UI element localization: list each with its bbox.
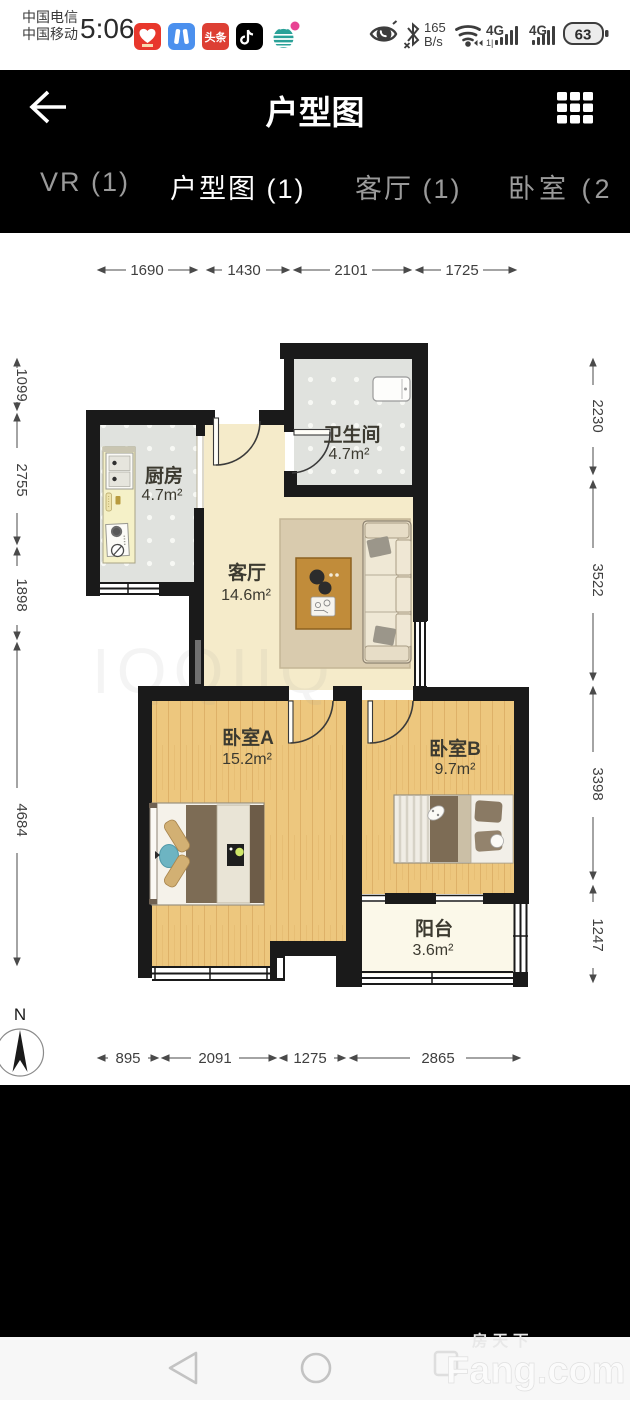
svg-text:4.7m²: 4.7m² bbox=[329, 446, 371, 463]
svg-text:1898: 1898 bbox=[13, 578, 30, 611]
svg-text:2755: 2755 bbox=[13, 463, 30, 496]
svg-text:1275: 1275 bbox=[293, 1050, 326, 1067]
svg-text:1247: 1247 bbox=[589, 918, 606, 951]
svg-text:1690: 1690 bbox=[130, 262, 163, 279]
svg-text:Fang.com: Fang.com bbox=[446, 1350, 625, 1392]
svg-text:N: N bbox=[14, 1005, 26, 1024]
svg-text:B/s: B/s bbox=[424, 34, 443, 49]
svg-text:卧室B: 卧室B bbox=[429, 737, 481, 760]
svg-text:165: 165 bbox=[424, 20, 446, 35]
svg-text:1430: 1430 bbox=[227, 262, 260, 279]
svg-text:14.6m²: 14.6m² bbox=[221, 587, 271, 604]
svg-text:4684: 4684 bbox=[13, 803, 30, 836]
svg-text:9.7m²: 9.7m² bbox=[435, 761, 477, 778]
svg-text:客厅: 客厅 bbox=[228, 561, 266, 584]
svg-text:63: 63 bbox=[575, 27, 592, 44]
svg-text:1725: 1725 bbox=[445, 262, 478, 279]
svg-text:895: 895 bbox=[115, 1050, 140, 1067]
svg-text:2101: 2101 bbox=[334, 262, 367, 279]
svg-text:头条: 头条 bbox=[205, 30, 228, 44]
svg-text:房天下: 房天下 bbox=[472, 1331, 534, 1350]
svg-text:3398: 3398 bbox=[589, 767, 606, 800]
svg-text:2091: 2091 bbox=[198, 1050, 231, 1067]
svg-text:卧室A: 卧室A bbox=[222, 726, 274, 749]
svg-text:4G: 4G bbox=[486, 23, 504, 38]
svg-text:1099: 1099 bbox=[13, 368, 30, 401]
svg-text:3.6m²: 3.6m² bbox=[413, 942, 455, 959]
svg-text:2230: 2230 bbox=[589, 399, 606, 432]
svg-text:1|: 1| bbox=[486, 38, 493, 48]
svg-text:卫生间: 卫生间 bbox=[323, 423, 380, 446]
svg-text:15.2m²: 15.2m² bbox=[222, 751, 272, 768]
svg-text:阳台: 阳台 bbox=[415, 917, 453, 940]
svg-text:2865: 2865 bbox=[421, 1050, 454, 1067]
svg-text:厨房: 厨房 bbox=[145, 464, 183, 487]
svg-text:4.7m²: 4.7m² bbox=[142, 487, 184, 504]
svg-text:3522: 3522 bbox=[589, 563, 606, 596]
